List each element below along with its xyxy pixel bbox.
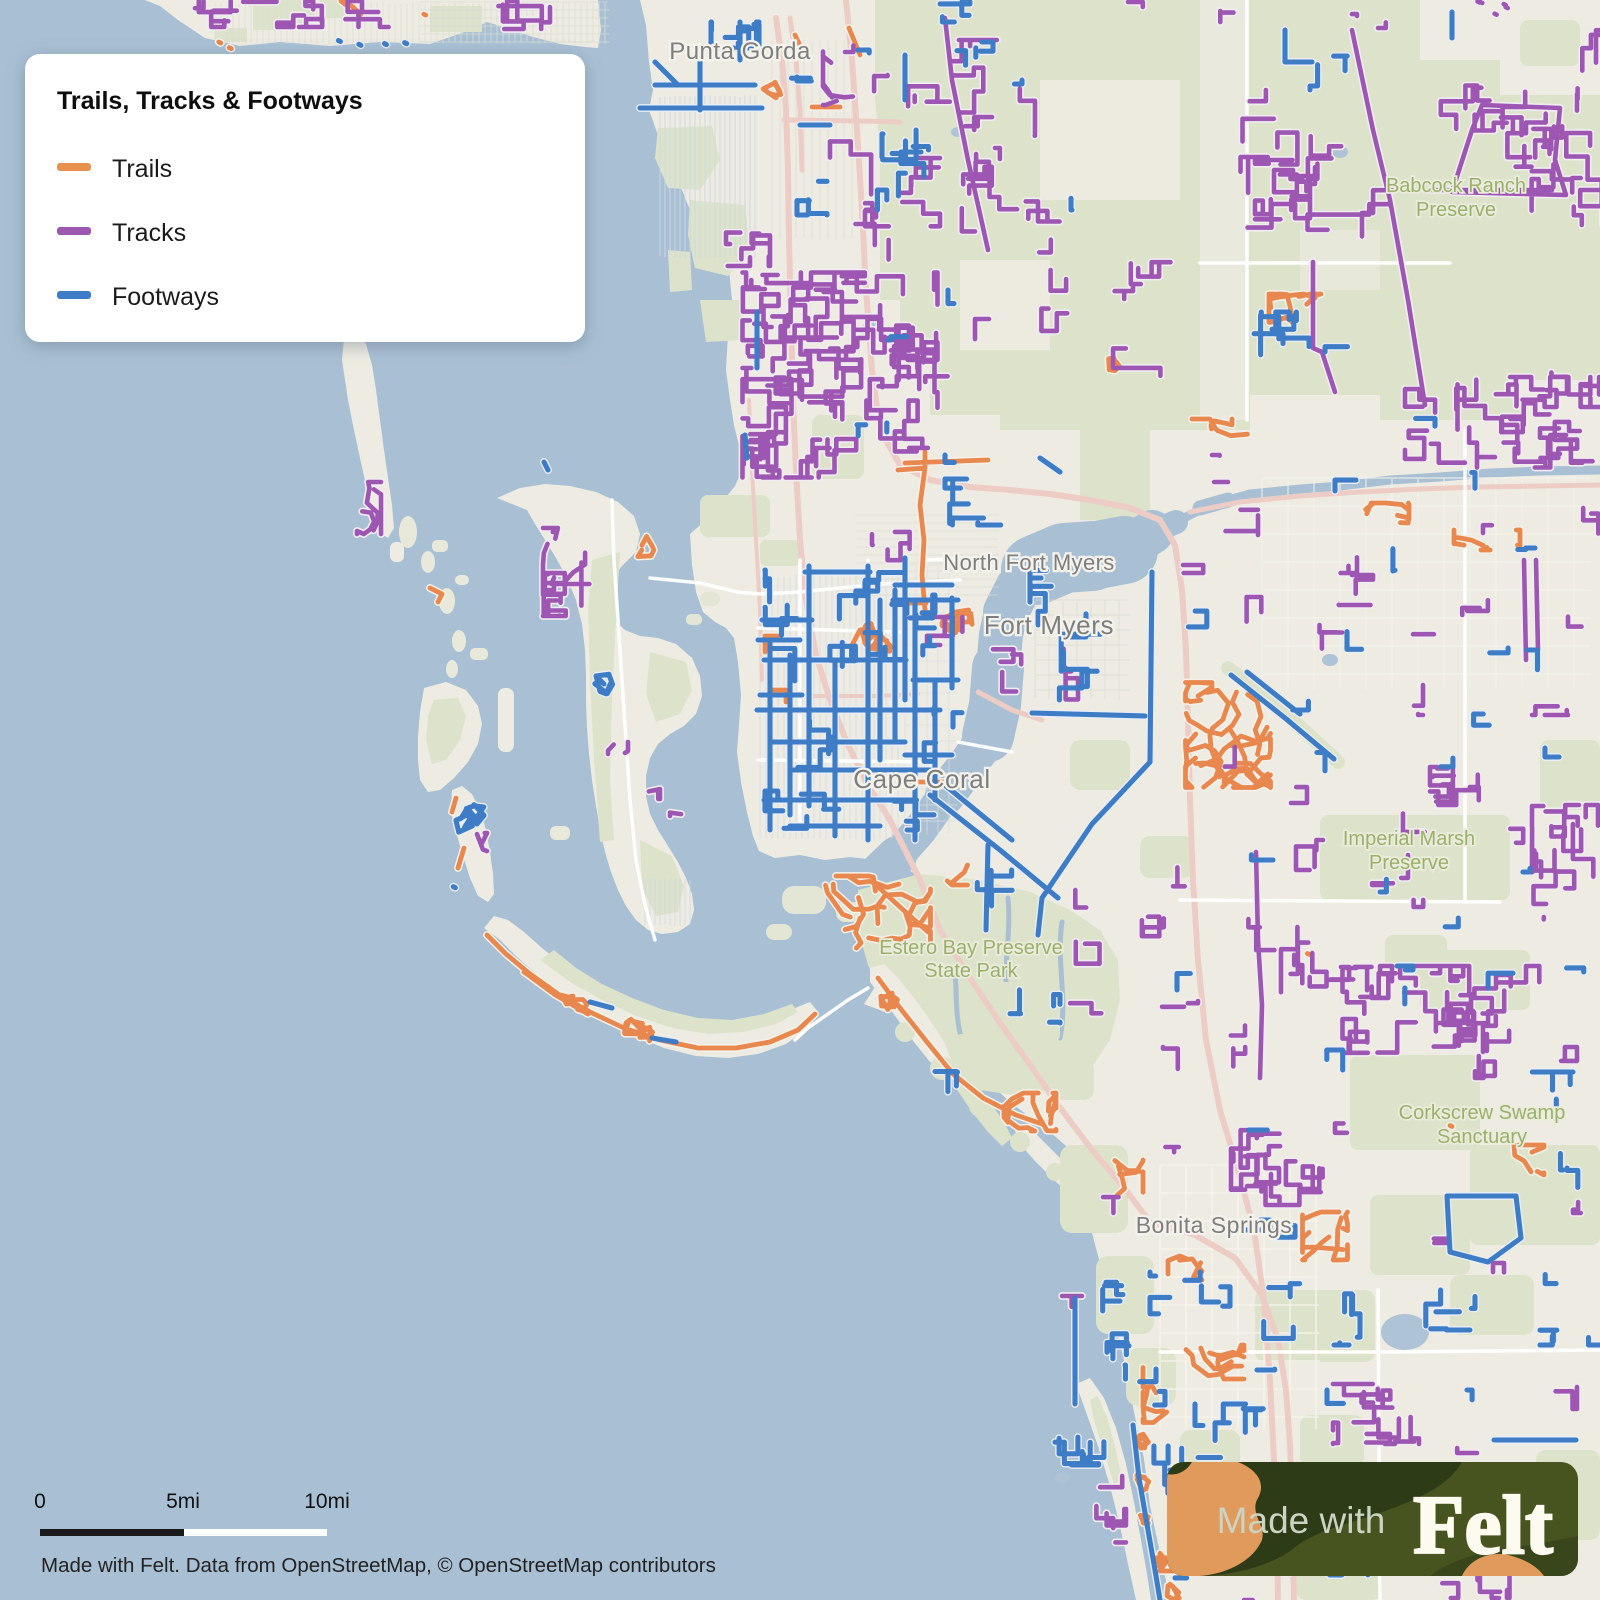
- svg-text:Preserve: Preserve: [1416, 199, 1496, 221]
- svg-text:Bonita Springs: Bonita Springs: [1136, 1212, 1293, 1238]
- svg-text:Tracks: Tracks: [112, 219, 186, 247]
- svg-text:Fort Myers: Fort Myers: [984, 610, 1114, 640]
- svg-text:Felt: Felt: [1413, 1479, 1553, 1572]
- svg-text:Cape Coral: Cape Coral: [853, 764, 991, 794]
- svg-text:Made with: Made with: [1217, 1500, 1386, 1541]
- svg-text:Corkscrew Swamp: Corkscrew Swamp: [1399, 1102, 1566, 1124]
- svg-text:5mi: 5mi: [166, 1490, 200, 1513]
- svg-text:Footways: Footways: [112, 283, 219, 311]
- svg-text:North Fort Myers: North Fort Myers: [943, 550, 1114, 575]
- svg-text:Preserve: Preserve: [1369, 852, 1449, 874]
- svg-text:0: 0: [34, 1490, 46, 1513]
- svg-text:Imperial Marsh: Imperial Marsh: [1343, 828, 1475, 850]
- svg-text:Punta Gorda: Punta Gorda: [669, 38, 811, 65]
- svg-text:10mi: 10mi: [304, 1490, 350, 1513]
- svg-text:State Park: State Park: [924, 960, 1018, 982]
- svg-text:Made with Felt. Data from Open: Made with Felt. Data from OpenStreetMap,…: [41, 1554, 716, 1577]
- svg-text:Babcock Ranch: Babcock Ranch: [1386, 175, 1526, 197]
- svg-text:Trails: Trails: [112, 155, 172, 183]
- svg-text:Estero Bay Preserve: Estero Bay Preserve: [879, 937, 1062, 959]
- svg-text:Trails, Tracks & Footways: Trails, Tracks & Footways: [57, 87, 363, 115]
- svg-text:Sanctuary: Sanctuary: [1437, 1126, 1527, 1148]
